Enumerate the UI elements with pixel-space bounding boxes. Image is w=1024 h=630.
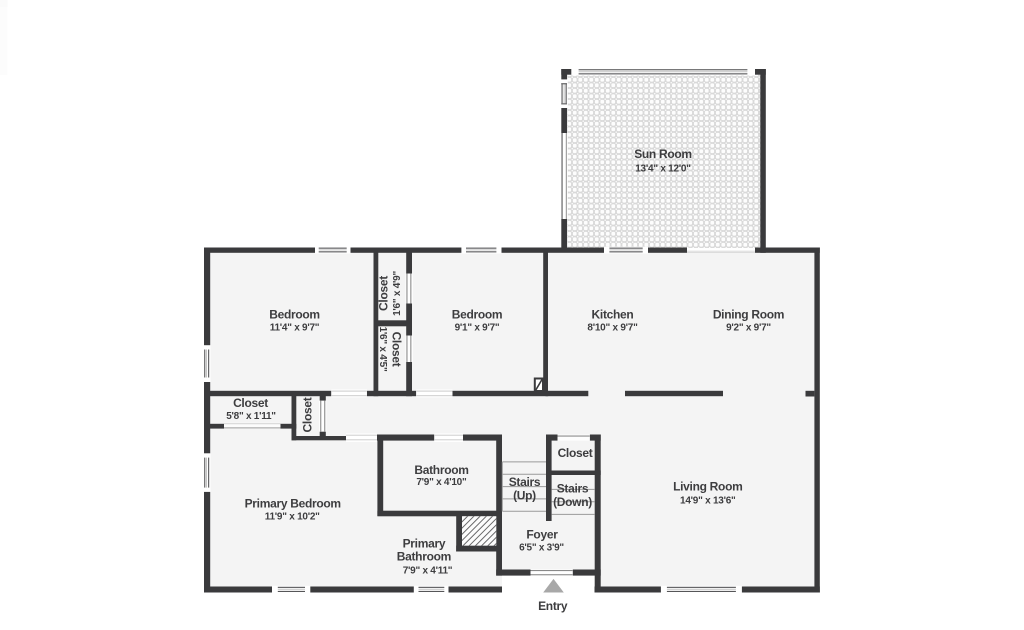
svg-text:Foyer: Foyer	[526, 528, 558, 542]
svg-text:Sun Room: Sun Room	[634, 147, 692, 161]
svg-text:11'9" x 10'2": 11'9" x 10'2"	[265, 512, 320, 523]
svg-text:(Up): (Up)	[513, 489, 536, 503]
svg-text:9'1" x 9'7": 9'1" x 9'7"	[455, 323, 500, 334]
svg-text:Closet: Closet	[377, 276, 391, 311]
svg-text:Bathroom: Bathroom	[397, 550, 451, 564]
svg-text:9'2" x 9'7": 9'2" x 9'7"	[726, 323, 771, 334]
svg-text:1'6" x 4'9": 1'6" x 4'9"	[392, 271, 403, 316]
svg-text:(Down): (Down)	[553, 495, 592, 509]
svg-text:Bathroom: Bathroom	[414, 463, 468, 477]
svg-text:11'4" x 9'7": 11'4" x 9'7"	[270, 323, 320, 334]
svg-text:Entry: Entry	[538, 599, 568, 613]
svg-text:Closet: Closet	[301, 397, 315, 432]
svg-text:Kitchen: Kitchen	[592, 308, 634, 322]
svg-text:14'9" x 13'6": 14'9" x 13'6"	[680, 496, 736, 507]
svg-text:Closet: Closet	[390, 332, 404, 367]
svg-text:13'4" x 12'0": 13'4" x 12'0"	[635, 164, 691, 175]
svg-text:6'5" x 3'9": 6'5" x 3'9"	[519, 543, 564, 554]
svg-text:5'8" x 1'11": 5'8" x 1'11"	[226, 411, 276, 422]
svg-text:7'9" x 4'11": 7'9" x 4'11"	[403, 565, 453, 576]
svg-text:Stairs: Stairs	[509, 475, 541, 489]
svg-text:1'6" x 4'5": 1'6" x 4'5"	[377, 327, 388, 372]
svg-text:Closet: Closet	[233, 396, 268, 410]
svg-text:Stairs: Stairs	[557, 482, 589, 496]
svg-text:Dining Room: Dining Room	[713, 308, 784, 322]
svg-text:7'9" x 4'10": 7'9" x 4'10"	[416, 477, 467, 488]
svg-text:Bedroom: Bedroom	[269, 308, 320, 322]
svg-text:Bedroom: Bedroom	[452, 308, 503, 322]
svg-text:Primary Bedroom: Primary Bedroom	[245, 497, 341, 511]
svg-text:8'10" x 9'7": 8'10" x 9'7"	[587, 323, 638, 334]
svg-text:Living Room: Living Room	[673, 480, 742, 494]
svg-text:Closet: Closet	[558, 446, 593, 460]
svg-text:Primary: Primary	[403, 537, 446, 551]
